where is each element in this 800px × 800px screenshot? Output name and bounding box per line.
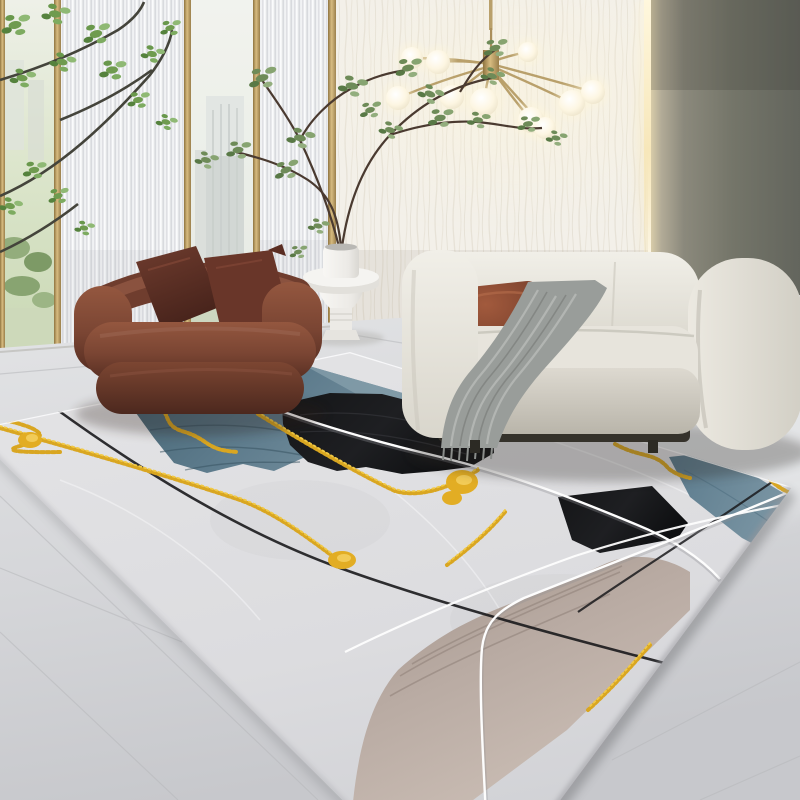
- plant-vase: [323, 246, 359, 278]
- chandelier-stem: [489, 0, 493, 30]
- cream-sofa: [402, 250, 800, 482]
- scene-canvas: [0, 0, 800, 800]
- left-window-park-view: [0, 0, 58, 352]
- sofa-foot: [648, 440, 658, 453]
- living-room-photo: [0, 0, 800, 800]
- sofa-foot: [470, 440, 480, 453]
